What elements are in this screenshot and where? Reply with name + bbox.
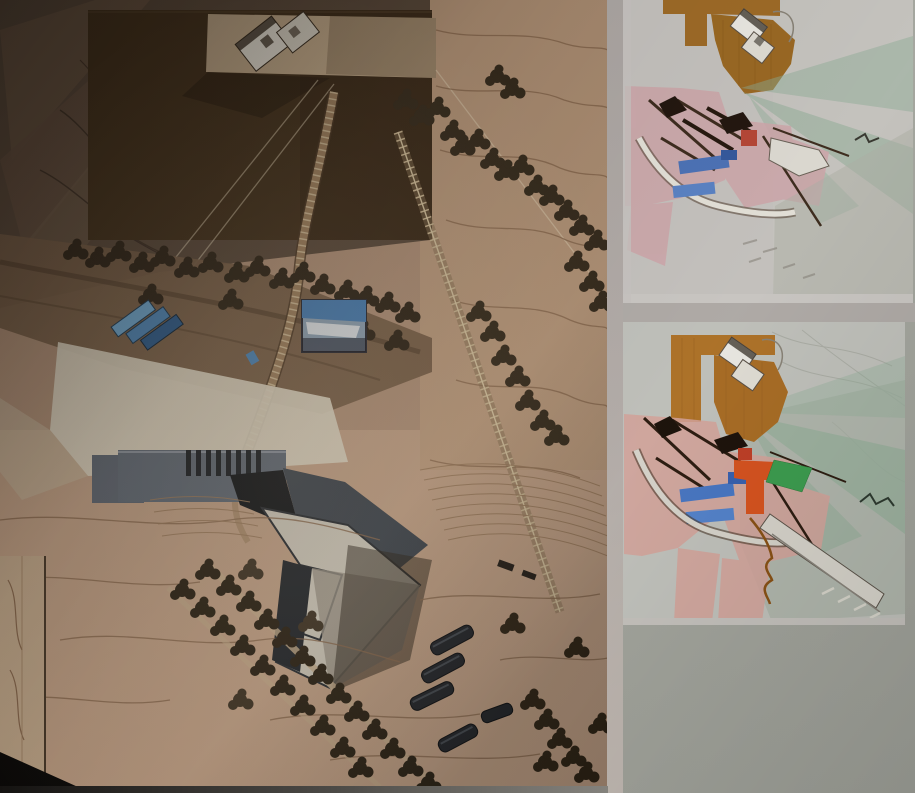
board-margin-vertical xyxy=(607,0,623,793)
presentation-board xyxy=(0,0,915,793)
masterplan-diagram-bottom xyxy=(622,322,905,625)
paper-margin-bottom xyxy=(622,618,905,625)
paper-margin-bottom xyxy=(623,294,913,303)
photo-bottom-edge xyxy=(0,786,608,793)
site-model-photo xyxy=(0,0,608,787)
masterplan-diagram-top xyxy=(623,0,913,303)
board-margin-horizontal xyxy=(623,303,915,322)
red-accent-square xyxy=(741,130,757,146)
paper-margin-left xyxy=(623,0,631,303)
photo-dim-overlay xyxy=(0,0,608,787)
red-accent-chip xyxy=(738,448,752,460)
